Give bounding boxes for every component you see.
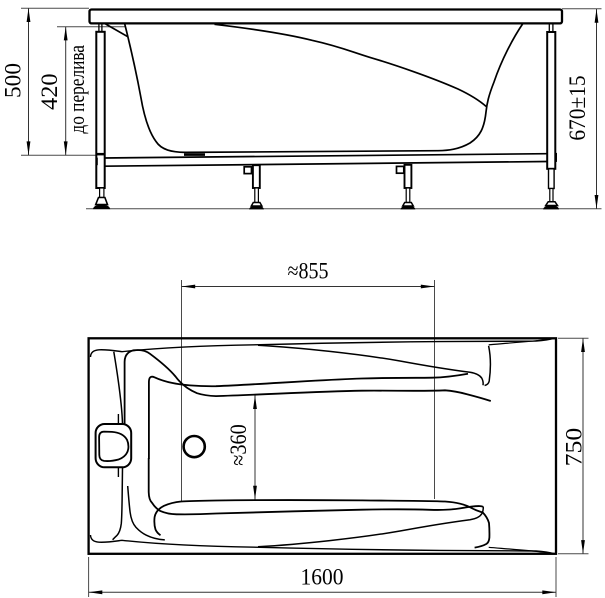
svg-text:до перелива: до перелива <box>64 45 89 134</box>
svg-text:670±15: 670±15 <box>565 75 591 140</box>
svg-text:1600: 1600 <box>301 565 344 591</box>
svg-text:750: 750 <box>561 428 587 467</box>
svg-text:420: 420 <box>37 73 63 110</box>
svg-text:500: 500 <box>1 63 27 98</box>
svg-text:≈855: ≈855 <box>288 259 329 285</box>
svg-text:≈360: ≈360 <box>226 424 252 466</box>
